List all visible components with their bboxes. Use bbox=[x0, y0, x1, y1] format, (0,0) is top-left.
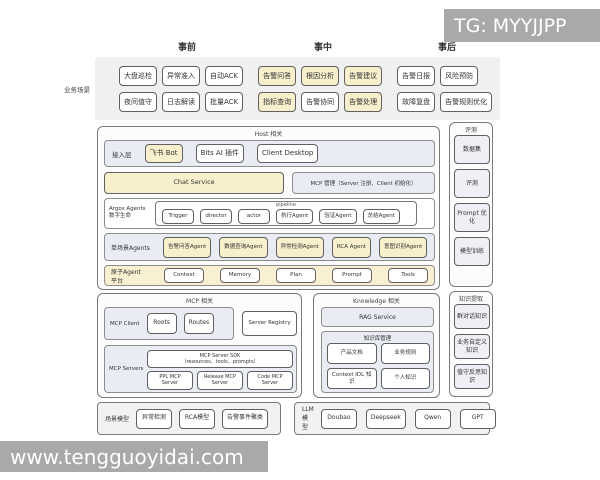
scenario-box: 告警日报 bbox=[397, 66, 435, 86]
pipeline-agent-box: 总结Agent bbox=[363, 209, 400, 224]
capability-box: Memory bbox=[220, 268, 260, 283]
server-registry-box: Server Registry bbox=[242, 311, 297, 336]
llm-models-label: LLM模型 bbox=[302, 406, 314, 431]
access-box: 飞书 Bot bbox=[145, 144, 183, 163]
single-scene-agents-label: 单场景Agents bbox=[111, 243, 155, 252]
mcp-server-boxes: PPL MCP ServerRelease MCP ServerCode MCP… bbox=[147, 371, 293, 390]
sdk-line2: （resources、tools、prompts） bbox=[181, 359, 258, 366]
evaluation-panel: 评测 数据集评测Prompt 优化模型训练 bbox=[449, 122, 493, 287]
phase-header-pre: 事前 bbox=[152, 40, 222, 53]
llm-model-box: Deepseek bbox=[366, 409, 406, 429]
access-box: Client Desktop bbox=[257, 144, 318, 163]
evaluation-box: Prompt 优化 bbox=[454, 203, 490, 232]
scene-models-label: 场景模型 bbox=[105, 414, 129, 423]
knowledge-box: 个人知识 bbox=[381, 368, 431, 389]
pipeline-container: pipeline Triggerdirectoractor执行Agent验证Ag… bbox=[155, 201, 417, 226]
argos-agents-row: Argos Agents 数字生命 pipeline Triggerdirect… bbox=[104, 198, 435, 229]
scenario-box: 自动ACK bbox=[205, 66, 243, 86]
phase-header-mid: 事中 bbox=[288, 40, 358, 53]
scenario-box: 风险预防 bbox=[440, 66, 478, 86]
mcp-client-row: MCP Client RootsRoutes bbox=[104, 307, 234, 340]
knowledge-extraction-panel: 知识提取 群对话知识业务自定义知识值守反思知识 bbox=[449, 291, 493, 397]
scenario-box: 日志解读 bbox=[162, 92, 200, 112]
agent-box: 数据查询Agent bbox=[219, 237, 267, 258]
host-panel-title: Host 相关 bbox=[98, 129, 439, 138]
llm-model-box: Qwen bbox=[415, 409, 451, 429]
mcp-servers-row: MCP Servers MCP Server SDK （resources、to… bbox=[104, 345, 297, 393]
scenario-box: 告警规则优化 bbox=[440, 92, 492, 112]
mcp-client-label: MCP Client bbox=[110, 321, 140, 327]
scenario-box: 大盘巡检 bbox=[119, 66, 157, 86]
mcp-panel: MCP 相关 MCP Client RootsRoutes Server Reg… bbox=[97, 293, 302, 398]
pipeline-agent-box: actor bbox=[238, 209, 270, 224]
evaluation-box: 数据集 bbox=[454, 135, 490, 164]
capability-box: Context bbox=[164, 268, 204, 283]
extraction-box: 业务自定义知识 bbox=[454, 334, 490, 359]
scenario-box: 告警协同 bbox=[301, 92, 339, 112]
scene-model-box: 异常检测 bbox=[136, 409, 172, 429]
evaluation-panel-title: 评测 bbox=[450, 125, 492, 134]
knowledge-box: Context IDL 知识 bbox=[327, 368, 377, 389]
capability-box: Tools bbox=[388, 268, 428, 283]
llm-model-box: Doubao bbox=[321, 409, 357, 429]
capability-box: Prompt bbox=[332, 268, 372, 283]
mcp-client-box: Routes bbox=[184, 313, 215, 334]
scenario-box: 批量ACK bbox=[205, 92, 243, 112]
llm-model-boxes: DoubaoDeepseekQwenGPT bbox=[321, 409, 496, 429]
pipeline-agent-box: Trigger bbox=[162, 209, 194, 224]
scenario-box: 告警处理 bbox=[344, 92, 382, 112]
mcp-server-box: Release MCP Server bbox=[197, 371, 243, 390]
mcp-servers-label: MCP Servers bbox=[109, 366, 144, 372]
knowledge-panel: Knowledge 相关 RAG Service 知识库管理 产品文档业务规则C… bbox=[313, 293, 440, 398]
watermark-url: www.tengguoyidai.com bbox=[0, 441, 268, 472]
access-layer-boxes: 飞书 BotBits AI 插件Client Desktop bbox=[145, 144, 319, 163]
extraction-box: 值守反思知识 bbox=[454, 364, 490, 389]
access-box: Bits AI 插件 bbox=[196, 144, 244, 163]
scenario-box: 根因分析 bbox=[301, 66, 339, 86]
knowledge-extraction-boxes: 群对话知识业务自定义知识值守反思知识 bbox=[454, 304, 490, 389]
extraction-box: 群对话知识 bbox=[454, 304, 490, 329]
knowledge-box: 业务规则 bbox=[381, 343, 431, 364]
pipeline-boxes: Triggerdirectoractor执行Agent验证Agent总结Agen… bbox=[162, 209, 400, 224]
scene-model-box: 告警事件聚类 bbox=[222, 409, 268, 429]
evaluation-box: 评测 bbox=[454, 169, 490, 198]
agent-box: RCA Agent bbox=[332, 237, 371, 258]
phase-header-post: 事后 bbox=[412, 40, 482, 53]
rag-service-box: RAG Service bbox=[321, 307, 434, 327]
scenario-row-2: 夜间值守日志解读批量ACK指标查询告警协同告警处理故障复盘告警规则优化 bbox=[119, 92, 492, 112]
atomic-agent-platform-row: 原子Agent 平台 ContextMemoryPlanPromptTools bbox=[104, 265, 435, 286]
single-scene-agents-row: 单场景Agents 告警问答Agent数据查询Agent异常检测AgentRCA… bbox=[104, 233, 435, 261]
scene-model-box: RCA模型 bbox=[179, 409, 215, 429]
mcp-server-box: PPL MCP Server bbox=[147, 371, 193, 390]
scenario-box: 夜间值守 bbox=[119, 92, 157, 112]
scenario-box: 告警问答 bbox=[258, 66, 296, 86]
knowledge-extraction-title: 知识提取 bbox=[450, 294, 492, 303]
watermark-telegram: TG: MYYJJPP bbox=[444, 9, 600, 42]
mcp-client-box: Roots bbox=[147, 313, 177, 334]
evaluation-boxes: 数据集评测Prompt 优化模型训练 bbox=[454, 135, 490, 266]
knowledge-panel-title: Knowledge 相关 bbox=[314, 296, 439, 305]
llm-models-row: LLM模型 DoubaoDeepseekQwenGPT bbox=[294, 402, 490, 435]
agent-box: 意图识别Agent bbox=[379, 237, 427, 258]
pipeline-agent-box: director bbox=[200, 209, 232, 224]
agent-box: 告警问答Agent bbox=[163, 237, 211, 258]
agent-box: 异常检测Agent bbox=[276, 237, 324, 258]
pipeline-title: pipeline bbox=[156, 202, 416, 208]
scenario-box: 告警建议 bbox=[344, 66, 382, 86]
scenario-box: 指标查询 bbox=[258, 92, 296, 112]
business-scenario-label: 业务场景 bbox=[64, 84, 90, 94]
mcp-server-box: Code MCP Server bbox=[247, 371, 293, 390]
evaluation-box: 模型训练 bbox=[454, 237, 490, 266]
knowledge-box: 产品文档 bbox=[327, 343, 377, 364]
chat-service-box: Chat Service bbox=[104, 172, 284, 194]
scenario-box: 故障复盘 bbox=[397, 92, 435, 112]
scenario-box: 异常准入 bbox=[162, 66, 200, 86]
mcp-management-box: MCP 管理（Server 注册、Client 初始化） bbox=[292, 172, 435, 194]
mcp-client-boxes: RootsRoutes bbox=[147, 313, 215, 334]
access-layer-row: 接入层 飞书 BotBits AI 插件Client Desktop bbox=[104, 140, 435, 167]
single-scene-agent-boxes: 告警问答Agent数据查询Agent异常检测AgentRCA Agent意图识别… bbox=[163, 237, 427, 258]
host-panel: Host 相关 接入层 飞书 BotBits AI 插件Client Deskt… bbox=[97, 126, 440, 290]
atomic-agent-platform-label: 原子Agent 平台 bbox=[111, 267, 148, 285]
business-scenario-band: 大盘巡检异常准入自动ACK告警问答根因分析告警建议告警日报风险预防 夜间值守日志… bbox=[95, 57, 500, 120]
scenario-row-1: 大盘巡检异常准入自动ACK告警问答根因分析告警建议告警日报风险预防 bbox=[119, 66, 478, 86]
capability-box: Plan bbox=[276, 268, 316, 283]
knowledge-base-boxes: 产品文档业务规则Context IDL 知识个人知识 bbox=[327, 343, 430, 389]
pipeline-agent-box: 验证Agent bbox=[319, 209, 356, 224]
argos-label-line2: 数字生命 bbox=[109, 213, 153, 220]
architecture-diagram: TG: MYYJJPP www.tengguoyidai.com 事前 事中 事… bbox=[0, 0, 600, 480]
pipeline-agent-box: 执行Agent bbox=[276, 209, 313, 224]
scene-model-boxes: 异常检测RCA模型告警事件聚类 bbox=[136, 409, 268, 429]
access-layer-label: 接入层 bbox=[112, 149, 132, 159]
mcp-server-sdk-box: MCP Server SDK （resources、tools、prompts） bbox=[147, 350, 293, 368]
llm-model-box: GPT bbox=[460, 409, 496, 429]
atomic-capability-boxes: ContextMemoryPlanPromptTools bbox=[164, 268, 428, 283]
argos-agents-label: Argos Agents 数字生命 bbox=[109, 206, 153, 220]
knowledge-base-container: 知识库管理 产品文档业务规则Context IDL 知识个人知识 bbox=[321, 331, 434, 393]
scene-models-row: 场景模型 异常检测RCA模型告警事件聚类 bbox=[97, 402, 281, 435]
mcp-panel-title: MCP 相关 bbox=[98, 296, 301, 305]
knowledge-base-title: 知识库管理 bbox=[322, 334, 433, 342]
